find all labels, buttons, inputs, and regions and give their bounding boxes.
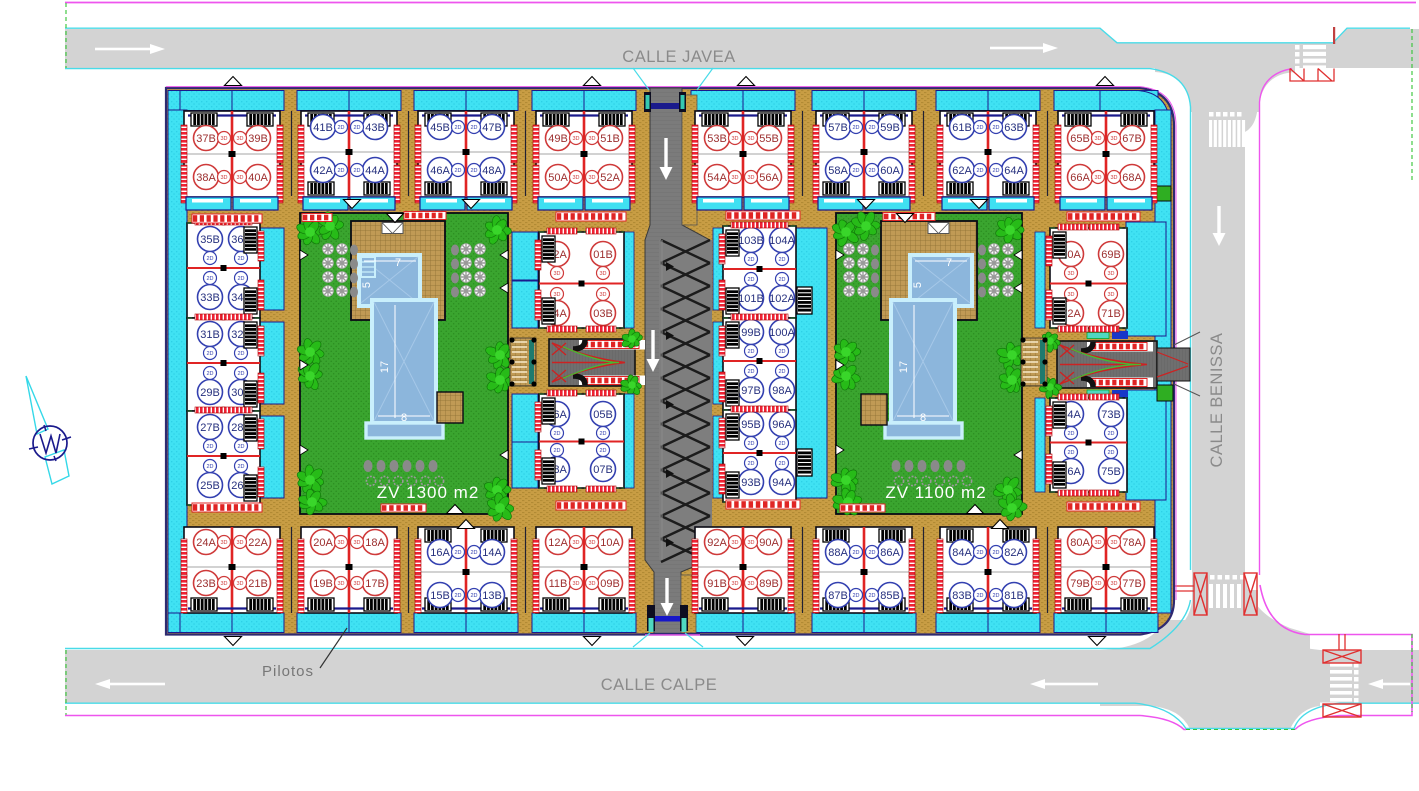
svg-text:2D: 2D: [470, 125, 477, 131]
svg-text:CALLE CALPE: CALLE CALPE: [601, 676, 717, 694]
svg-text:43B: 43B: [365, 122, 385, 134]
svg-text:2D: 2D: [778, 369, 785, 375]
svg-text:ZV 1100 m2: ZV 1100 m2: [885, 483, 986, 502]
svg-text:85B: 85B: [880, 590, 900, 602]
svg-text:59B: 59B: [880, 122, 900, 134]
svg-text:97B: 97B: [741, 385, 761, 397]
svg-text:3D: 3D: [1110, 136, 1117, 142]
svg-text:3D: 3D: [599, 292, 606, 298]
svg-text:2D: 2D: [237, 351, 244, 357]
svg-text:3D: 3D: [1107, 271, 1114, 277]
svg-text:3D: 3D: [572, 175, 579, 181]
svg-text:2D: 2D: [1107, 450, 1114, 456]
svg-text:82A: 82A: [1004, 547, 1024, 559]
svg-text:19B: 19B: [313, 578, 333, 590]
svg-text:3D: 3D: [1094, 581, 1101, 587]
svg-text:2D: 2D: [778, 349, 785, 355]
svg-text:2D: 2D: [747, 461, 754, 467]
svg-text:03B: 03B: [593, 308, 613, 320]
svg-text:2D: 2D: [852, 550, 859, 556]
svg-text:2D: 2D: [237, 371, 244, 377]
svg-text:3D: 3D: [588, 136, 595, 142]
svg-text:77B: 77B: [1122, 578, 1142, 590]
svg-text:3D: 3D: [572, 581, 579, 587]
svg-text:67B: 67B: [1122, 133, 1142, 145]
svg-text:3D: 3D: [236, 175, 243, 181]
svg-text:3D: 3D: [236, 136, 243, 142]
svg-text:2D: 2D: [237, 444, 244, 450]
svg-text:79B: 79B: [1070, 578, 1090, 590]
svg-text:3D: 3D: [747, 175, 754, 181]
svg-text:96A: 96A: [772, 419, 792, 431]
svg-text:2D: 2D: [976, 593, 983, 599]
svg-text:40A: 40A: [248, 172, 268, 184]
svg-text:55B: 55B: [759, 133, 779, 145]
svg-text:58A: 58A: [828, 165, 848, 177]
svg-text:13B: 13B: [482, 590, 502, 602]
svg-text:3D: 3D: [599, 271, 606, 277]
svg-text:3D: 3D: [1110, 540, 1117, 546]
svg-text:2D: 2D: [778, 257, 785, 263]
svg-text:25B: 25B: [200, 480, 220, 492]
svg-text:62A: 62A: [952, 165, 972, 177]
svg-text:3D: 3D: [731, 540, 738, 546]
svg-text:20A: 20A: [313, 537, 333, 549]
svg-text:3D: 3D: [337, 540, 344, 546]
svg-text:3D: 3D: [553, 271, 560, 277]
svg-text:45B: 45B: [430, 122, 450, 134]
svg-text:2D: 2D: [337, 125, 344, 131]
svg-text:104A: 104A: [769, 235, 795, 247]
svg-text:103B: 103B: [738, 235, 764, 247]
svg-text:2D: 2D: [553, 448, 560, 454]
svg-text:2D: 2D: [454, 593, 461, 599]
svg-text:2D: 2D: [747, 369, 754, 375]
svg-text:73B: 73B: [1101, 409, 1121, 421]
svg-text:2D: 2D: [470, 550, 477, 556]
svg-text:01B: 01B: [593, 249, 613, 261]
svg-text:09B: 09B: [600, 578, 620, 590]
svg-text:3D: 3D: [220, 175, 227, 181]
svg-text:7: 7: [946, 257, 952, 269]
svg-text:99B: 99B: [741, 327, 761, 339]
svg-text:46A: 46A: [430, 165, 450, 177]
svg-text:23B: 23B: [196, 578, 216, 590]
svg-text:2D: 2D: [778, 277, 785, 283]
svg-text:80A: 80A: [1070, 537, 1090, 549]
svg-text:101B: 101B: [738, 293, 764, 305]
svg-text:44A: 44A: [365, 165, 385, 177]
svg-text:2D: 2D: [206, 256, 213, 262]
svg-text:21B: 21B: [248, 578, 268, 590]
svg-text:10A: 10A: [600, 537, 620, 549]
svg-text:60A: 60A: [880, 165, 900, 177]
svg-text:3D: 3D: [731, 175, 738, 181]
svg-text:63B: 63B: [1004, 122, 1024, 134]
svg-text:35B: 35B: [200, 234, 220, 246]
svg-text:07B: 07B: [593, 464, 613, 476]
svg-text:2D: 2D: [237, 464, 244, 470]
svg-text:53B: 53B: [707, 133, 727, 145]
svg-text:11B: 11B: [549, 578, 568, 590]
svg-text:2D: 2D: [868, 168, 875, 174]
svg-text:47B: 47B: [482, 122, 502, 134]
svg-text:05B: 05B: [593, 409, 613, 421]
svg-text:2D: 2D: [747, 441, 754, 447]
svg-text:3D: 3D: [353, 540, 360, 546]
svg-text:3D: 3D: [588, 540, 595, 546]
svg-text:CALLE BENISSA: CALLE BENISSA: [1208, 333, 1226, 468]
svg-text:89B: 89B: [759, 578, 779, 590]
svg-text:7: 7: [395, 257, 401, 269]
svg-text:87B: 87B: [828, 590, 848, 602]
svg-text:2D: 2D: [868, 125, 875, 131]
svg-text:2D: 2D: [470, 593, 477, 599]
svg-text:3D: 3D: [220, 581, 227, 587]
svg-text:2D: 2D: [852, 593, 859, 599]
svg-text:71B: 71B: [1101, 308, 1121, 320]
svg-text:Pilotos: Pilotos: [262, 663, 314, 680]
svg-text:56A: 56A: [759, 172, 779, 184]
svg-text:2D: 2D: [206, 351, 213, 357]
svg-text:15B: 15B: [430, 590, 450, 602]
svg-text:2D: 2D: [1067, 431, 1074, 437]
svg-text:98A: 98A: [772, 385, 792, 397]
svg-text:3D: 3D: [731, 581, 738, 587]
svg-text:50A: 50A: [548, 172, 568, 184]
svg-text:48A: 48A: [482, 165, 502, 177]
svg-text:3D: 3D: [236, 581, 243, 587]
svg-text:3D: 3D: [236, 540, 243, 546]
svg-text:2D: 2D: [237, 256, 244, 262]
svg-text:3D: 3D: [1094, 540, 1101, 546]
svg-text:66A: 66A: [1070, 172, 1090, 184]
svg-text:3D: 3D: [572, 540, 579, 546]
svg-text:2D: 2D: [747, 277, 754, 283]
svg-text:2D: 2D: [868, 550, 875, 556]
svg-text:ZV 1300 m2: ZV 1300 m2: [377, 483, 480, 502]
svg-text:2D: 2D: [599, 431, 606, 437]
svg-text:2D: 2D: [1107, 431, 1114, 437]
svg-text:5: 5: [912, 282, 924, 288]
svg-text:3D: 3D: [588, 581, 595, 587]
svg-text:31B: 31B: [200, 329, 220, 341]
svg-text:3D: 3D: [747, 581, 754, 587]
svg-text:2D: 2D: [976, 168, 983, 174]
svg-text:83B: 83B: [952, 590, 972, 602]
svg-text:78A: 78A: [1122, 537, 1142, 549]
svg-text:41B: 41B: [313, 122, 333, 134]
svg-text:52A: 52A: [600, 172, 620, 184]
svg-text:93B: 93B: [741, 477, 761, 489]
svg-text:57B: 57B: [828, 122, 848, 134]
svg-text:68A: 68A: [1122, 172, 1142, 184]
svg-text:64A: 64A: [1004, 165, 1024, 177]
svg-text:65B: 65B: [1070, 133, 1090, 145]
svg-text:2D: 2D: [206, 444, 213, 450]
svg-text:42A: 42A: [313, 165, 333, 177]
svg-text:88A: 88A: [828, 547, 848, 559]
svg-text:3D: 3D: [747, 540, 754, 546]
svg-text:3D: 3D: [1110, 175, 1117, 181]
svg-text:51B: 51B: [600, 133, 620, 145]
svg-text:2D: 2D: [992, 168, 999, 174]
svg-text:2D: 2D: [778, 461, 785, 467]
svg-text:2D: 2D: [454, 168, 461, 174]
svg-text:2D: 2D: [852, 168, 859, 174]
svg-text:90A: 90A: [759, 537, 779, 549]
svg-text:37B: 37B: [196, 133, 216, 145]
svg-text:2D: 2D: [868, 593, 875, 599]
svg-text:2D: 2D: [470, 168, 477, 174]
svg-text:54A: 54A: [707, 172, 727, 184]
svg-text:2D: 2D: [353, 125, 360, 131]
svg-text:86A: 86A: [880, 547, 900, 559]
svg-text:81B: 81B: [1004, 590, 1024, 602]
svg-text:22A: 22A: [248, 537, 268, 549]
svg-text:91B: 91B: [707, 578, 727, 590]
svg-text:17: 17: [379, 361, 391, 373]
svg-text:2D: 2D: [976, 125, 983, 131]
svg-text:2D: 2D: [206, 276, 213, 282]
svg-text:3D: 3D: [220, 136, 227, 142]
svg-text:3D: 3D: [572, 136, 579, 142]
svg-text:3D: 3D: [1107, 292, 1114, 298]
svg-text:2D: 2D: [778, 441, 785, 447]
svg-text:3D: 3D: [731, 136, 738, 142]
svg-text:17B: 17B: [365, 578, 385, 590]
svg-text:17: 17: [898, 361, 910, 373]
svg-text:8: 8: [401, 412, 407, 424]
svg-text:14A: 14A: [482, 547, 502, 559]
svg-text:12A: 12A: [548, 537, 568, 549]
svg-text:18A: 18A: [365, 537, 385, 549]
svg-text:2D: 2D: [337, 168, 344, 174]
svg-text:2D: 2D: [353, 168, 360, 174]
svg-text:24A: 24A: [196, 537, 216, 549]
svg-text:3D: 3D: [353, 581, 360, 587]
svg-text:16A: 16A: [430, 547, 450, 559]
svg-text:3D: 3D: [1094, 136, 1101, 142]
svg-text:94A: 94A: [772, 477, 792, 489]
svg-text:75B: 75B: [1101, 466, 1121, 478]
svg-text:2D: 2D: [852, 125, 859, 131]
svg-text:8: 8: [920, 412, 926, 424]
svg-text:3D: 3D: [553, 292, 560, 298]
svg-text:2D: 2D: [747, 257, 754, 263]
svg-text:27B: 27B: [200, 422, 220, 434]
svg-text:38A: 38A: [196, 172, 216, 184]
svg-text:49B: 49B: [548, 133, 568, 145]
svg-text:39B: 39B: [248, 133, 268, 145]
svg-text:2D: 2D: [237, 276, 244, 282]
svg-text:3D: 3D: [337, 581, 344, 587]
svg-text:2D: 2D: [599, 448, 606, 454]
svg-text:2D: 2D: [553, 431, 560, 437]
svg-text:100A: 100A: [769, 327, 795, 339]
svg-text:92A: 92A: [707, 537, 727, 549]
svg-text:61B: 61B: [952, 122, 972, 134]
svg-text:2D: 2D: [992, 550, 999, 556]
svg-text:102A: 102A: [769, 293, 795, 305]
svg-text:2D: 2D: [206, 464, 213, 470]
svg-text:3D: 3D: [1094, 175, 1101, 181]
svg-text:CALLE JAVEA: CALLE JAVEA: [622, 48, 735, 66]
svg-text:3D: 3D: [588, 175, 595, 181]
svg-text:3D: 3D: [1067, 271, 1074, 277]
svg-text:33B: 33B: [200, 292, 220, 304]
svg-text:2D: 2D: [454, 550, 461, 556]
svg-text:2D: 2D: [992, 125, 999, 131]
svg-text:2D: 2D: [206, 371, 213, 377]
svg-text:2D: 2D: [454, 125, 461, 131]
svg-text:95B: 95B: [741, 419, 761, 431]
svg-text:29B: 29B: [200, 387, 220, 399]
svg-text:69B: 69B: [1101, 249, 1121, 261]
svg-text:2D: 2D: [747, 349, 754, 355]
svg-text:3D: 3D: [220, 540, 227, 546]
svg-text:2D: 2D: [976, 550, 983, 556]
svg-text:2D: 2D: [992, 593, 999, 599]
svg-text:3D: 3D: [1067, 292, 1074, 298]
svg-text:3D: 3D: [747, 136, 754, 142]
svg-text:3D: 3D: [1110, 581, 1117, 587]
svg-text:2D: 2D: [1067, 450, 1074, 456]
svg-text:84A: 84A: [952, 547, 972, 559]
svg-text:5: 5: [361, 282, 373, 288]
